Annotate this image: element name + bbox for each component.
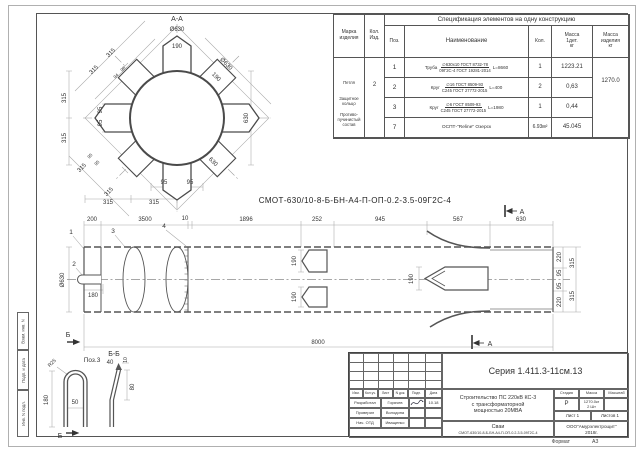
dim-label: 50 — [72, 400, 79, 406]
rev-header-izm: Изм. — [349, 389, 363, 398]
dim-label: 10 — [123, 357, 129, 363]
callout-1: 1 — [69, 229, 73, 236]
sig-name: Володина — [381, 408, 409, 418]
spec-row-poz: 1 — [385, 58, 405, 78]
object-cell: Сваи СМОТ-630/10-8-Б-БН-А4-П-ОП-0.2-3.5-… — [442, 421, 554, 438]
sheets-cell: Листов 1 — [591, 411, 629, 421]
sig-empty-row — [349, 428, 442, 438]
dim-label: R25 — [47, 358, 58, 369]
spec-header-marka: Марка изделия — [334, 15, 365, 58]
section-mark-b: Б — [58, 433, 63, 440]
dim-label: 8000 — [311, 340, 325, 346]
spec-mass-izd-value: 1270.0 — [593, 58, 629, 138]
sig-role: Нач. ОТД — [349, 418, 381, 428]
stage-value: Р — [554, 398, 579, 411]
spec-row-mass: 45.045 — [552, 118, 593, 138]
mass-label: Масса — [579, 389, 604, 398]
marka-item: Защитное кольцо — [334, 96, 364, 106]
rev-header-data: Дата — [425, 389, 442, 398]
pile-designation: СМОТ-630/10-8-Б-БН-А4-П-ОП-0.2-3.5-09Г2С… — [190, 196, 520, 205]
format-value: А3 — [592, 439, 598, 445]
spec-header-kol-izd: Кол. Изд. — [365, 15, 385, 58]
project-cell: Строительство ПС 220кВ КС-3 с трансформа… — [442, 389, 554, 421]
callout-2: 2 — [72, 261, 76, 268]
dim-label: 3500 — [138, 217, 152, 223]
pile-side-view — [67, 231, 570, 327]
dim-label: 315 — [89, 64, 101, 76]
rev-header-list: Лист — [378, 389, 393, 398]
spec-row-mass: 0,44 — [552, 98, 593, 118]
drawing-sheet: Взам. инв. N Подп. и дата Инв. N подл. — [0, 0, 640, 453]
mass-value: 1270.0кг 2 Шт — [579, 398, 604, 411]
sig-name: Иващенко — [381, 418, 409, 428]
sidebar-cell-vzam: Взам. инв. N — [17, 312, 29, 350]
sidebar-cell-inv: Инв. N подл. — [17, 390, 29, 437]
dim-label: 315 — [570, 257, 576, 268]
spec-row-kol: 6.93м² — [529, 118, 552, 138]
dim-label: 630 — [516, 217, 527, 223]
rev-header-podp: Подп. — [408, 389, 425, 398]
spec-table: Марка изделия Кол. Изд. Спецификация эле… — [333, 14, 630, 139]
dim-label: 95 — [93, 159, 100, 166]
sidebar-cell-podp: Подп. и дата — [17, 350, 29, 390]
dim-label: 95 — [98, 106, 104, 113]
material-spec: ∅6 ГОСТ 8509-93 С245 ГОСТ 27772-2015 — [441, 102, 486, 114]
sig-role: Разработал — [349, 398, 381, 408]
format-note: Формат А3 — [520, 439, 630, 445]
sig-date: 10.18 — [425, 398, 442, 408]
material-prefix: Труба — [425, 65, 437, 70]
spec-table-title: Спецификация элементов на одну конструкц… — [385, 15, 629, 26]
stage-label: Стадия — [554, 389, 579, 398]
material-length: L=8660 — [493, 65, 508, 70]
section-aa-svg: А-АØ6301903153159496Ø6301906303153159595… — [55, 8, 325, 205]
material-prefix: Круг — [429, 105, 438, 110]
dim-label: 315 — [570, 290, 576, 301]
dim-label: 95 — [557, 282, 563, 289]
rev-header-ndok: N док. — [393, 389, 408, 398]
dim-label: 190 — [292, 255, 298, 266]
spec-row-name: Труба ∅630х10 ГОСТ 8732-78 09Г2С-4 ГОСТ … — [405, 58, 529, 78]
marka-item: Петля — [334, 80, 364, 85]
loop-detail — [64, 371, 87, 428]
sig-name: Горячев — [381, 398, 409, 408]
scale-label: Масштаб — [604, 389, 629, 398]
scale-value — [604, 398, 629, 411]
detail-view-svg: Поз.3R2518050Б-Б401080Б — [30, 348, 190, 448]
dim-label: 315 — [62, 92, 68, 103]
dim-label: 180 — [88, 293, 99, 299]
dim-label: 220 — [557, 251, 563, 262]
sidebar-label: Инв. N подл. — [21, 401, 26, 426]
sig-date — [425, 418, 442, 428]
material-spec: ∅630х10 ГОСТ 8732-78 09Г2С-4 ГОСТ 19281-… — [439, 62, 490, 74]
sidebar-label: Взам. инв. N — [21, 319, 26, 343]
dim-label: 220 — [557, 296, 563, 307]
spec-row-name: Круг ∅16 ГОСТ 8509-93 С245 ГОСТ 27772-20… — [405, 78, 529, 98]
section-mark-b: Б — [66, 332, 71, 339]
main-view-svg: 20035001018962529455676308000Ø6301801234… — [55, 205, 640, 357]
dim-label: 190 — [172, 44, 183, 50]
dim-label: 40 — [107, 360, 114, 366]
section-cut-mark-b — [66, 431, 78, 435]
material-length: L=400 — [489, 85, 502, 90]
sig-role: Проверил — [349, 408, 381, 418]
signature-graphic — [410, 399, 424, 407]
spec-header-kol: Кол. — [529, 26, 552, 58]
dim-label: Ø630 — [60, 272, 66, 287]
marka-item: Противо- пучинистый состав — [334, 112, 364, 127]
dim-label: 315 — [104, 186, 116, 198]
section-mark-a: А — [520, 209, 525, 216]
dim-label: 200 — [87, 217, 98, 223]
dim-label: 95 — [161, 180, 168, 186]
sidebar-label: Подп. и дата — [21, 358, 26, 383]
revision-col — [378, 353, 379, 389]
spec-header-mass-det: Масса 1дет. кг — [552, 26, 593, 58]
material-spec: ∅16 ГОСТ 8509-93 С245 ГОСТ 27772-2015 — [442, 82, 487, 94]
material-length: L=1980 — [488, 105, 503, 110]
spec-header-poz: Поз. — [385, 26, 405, 58]
dim-label: 95 — [98, 119, 104, 126]
dim-label: 315 — [77, 162, 89, 174]
sig-signature — [409, 408, 425, 418]
spec-kol-izd-value: 2 — [365, 58, 385, 138]
main-dim-lines — [66, 221, 581, 351]
series-cell: Серия 1.411.3-11см.13 — [442, 353, 629, 389]
dim-label: 180 — [44, 394, 50, 405]
spec-row-kol: 2 — [529, 78, 552, 98]
spec-row-kol: 1 — [529, 58, 552, 78]
spec-header-mass-izd: Масса изделия кг — [593, 26, 629, 58]
rod-detail — [110, 363, 122, 427]
spec-row-kol: 1 — [529, 98, 552, 118]
section-title-bb: Б-Б — [108, 351, 120, 358]
revision-col — [363, 353, 364, 389]
spec-row-poz: 7 — [385, 118, 405, 138]
dim-label: 315 — [62, 132, 68, 143]
revision-col — [408, 353, 409, 389]
detail-dim-lines — [49, 363, 130, 427]
sig-date — [425, 408, 442, 418]
sheet-cell: Лист 1 — [554, 411, 591, 421]
dim-label: 630 — [244, 112, 250, 123]
dim-label: 945 — [375, 217, 386, 223]
dim-label: 10 — [182, 216, 189, 222]
title-block: Изм. Кол.уч. Лист N док. Подп. Дата Разр… — [348, 352, 628, 437]
material-prefix: Круг — [431, 85, 440, 90]
section-mark-a: А — [488, 341, 493, 348]
spec-header-name: Наименование — [405, 26, 529, 58]
spec-marka-column: Петля Защитное кольцо Противо- пучинисты… — [334, 58, 365, 138]
company-cell: ООО"Амурэлектрощит" 2018г. — [554, 421, 629, 438]
dim-label: 95 — [86, 152, 93, 159]
spec-row-poz: 3 — [385, 98, 405, 118]
rev-header-koluch: Кол.уч. — [363, 389, 378, 398]
object-code: СМОТ-630/10-8-Б-БН-А4-П-ОП-0.2-3.5-09Г2С… — [459, 431, 538, 435]
spec-row-mass: 0,63 — [552, 78, 593, 98]
spec-row-poz: 2 — [385, 78, 405, 98]
callout-4: 4 — [162, 223, 166, 230]
dim-label: Ø630 — [170, 27, 185, 33]
dim-label: 1896 — [239, 217, 253, 223]
revision-col — [425, 353, 426, 389]
callout-3: 3 — [111, 228, 115, 235]
sig-signature — [409, 418, 425, 428]
dim-label: 190 — [409, 273, 415, 284]
dim-label: 252 — [312, 217, 323, 223]
spec-row-name: ОСПТ-"Reline" Озерск — [405, 118, 529, 138]
revision-col — [393, 353, 394, 389]
dim-label: 567 — [453, 217, 464, 223]
dim-label: 95 — [557, 269, 563, 276]
format-label: Формат — [552, 439, 570, 445]
spec-row-name: Круг ∅6 ГОСТ 8509-93 С245 ГОСТ 27772-201… — [405, 98, 529, 118]
pos3-label: Поз.3 — [84, 357, 101, 364]
sig-signature — [409, 398, 425, 408]
dim-label: 95 — [187, 180, 194, 186]
dim-label: 190 — [292, 291, 298, 302]
spec-row-mass: 1223.21 — [552, 58, 593, 78]
dim-label: 315 — [106, 47, 118, 59]
dim-label: 80 — [130, 383, 136, 390]
section-title-aa: А-А — [171, 16, 183, 23]
